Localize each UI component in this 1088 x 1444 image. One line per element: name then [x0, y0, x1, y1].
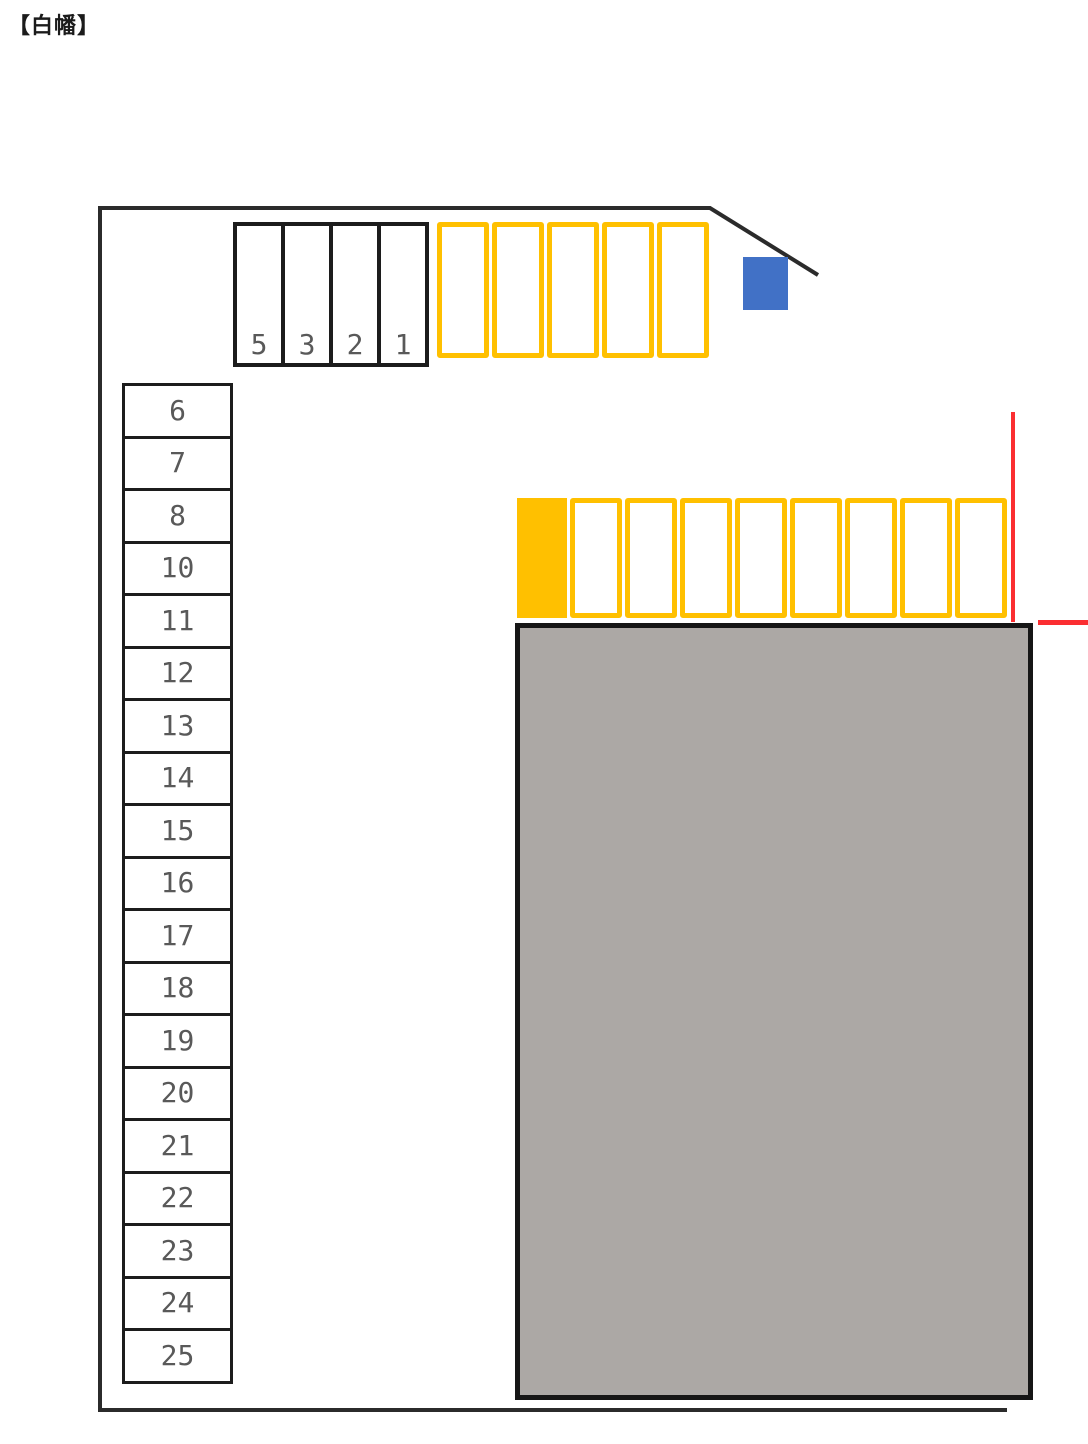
parking-stall-numbered: 2	[329, 222, 381, 367]
red-boundary-vertical-line	[1011, 412, 1015, 622]
parking-stall-numbered: 13	[122, 698, 233, 754]
parking-stall-yellow	[492, 222, 544, 358]
parking-stall-yellow	[735, 498, 787, 618]
stall-number: 16	[161, 869, 195, 897]
parking-stall-numbered: 20	[122, 1066, 233, 1122]
parking-stall-numbered: 19	[122, 1013, 233, 1069]
parking-stall-numbered: 24	[122, 1276, 233, 1332]
parking-stall-numbered: 7	[122, 436, 233, 492]
stall-number: 6	[169, 397, 186, 425]
parking-stall-yellow	[437, 222, 489, 358]
parking-stall-yellow	[625, 498, 677, 618]
parking-stall-numbered: 11	[122, 593, 233, 649]
parking-stall-numbered: 23	[122, 1223, 233, 1279]
stall-group-middle-yellow	[570, 498, 1007, 618]
stall-number: 24	[161, 1289, 195, 1317]
stall-group-top-yellow	[437, 222, 709, 358]
parking-stall-numbered: 22	[122, 1171, 233, 1227]
blue-marker	[743, 257, 788, 310]
parking-stall-numbered: 17	[122, 908, 233, 964]
parking-stall-yellow	[790, 498, 842, 618]
parking-stall-numbered: 8	[122, 488, 233, 544]
parking-stall-numbered: 16	[122, 856, 233, 912]
parking-stall-numbered: 14	[122, 751, 233, 807]
parking-stall-numbered: 10	[122, 541, 233, 597]
parking-stall-yellow	[657, 222, 709, 358]
stall-number: 23	[161, 1237, 195, 1265]
red-boundary-horizontal-line	[1038, 620, 1088, 625]
stall-number: 19	[161, 1027, 195, 1055]
parking-stall-numbered: 6	[122, 383, 233, 439]
page-title: 【白幡】	[8, 8, 100, 40]
parking-stall-yellow	[955, 498, 1007, 618]
stall-number: 12	[161, 659, 195, 687]
parking-stall-yellow	[570, 498, 622, 618]
stall-number: 15	[161, 817, 195, 845]
parking-stall-numbered: 15	[122, 803, 233, 859]
parking-stall-numbered: 25	[122, 1328, 233, 1384]
parking-stall-yellow	[547, 222, 599, 358]
stall-number: 2	[347, 331, 364, 359]
stall-column-left: 6 7 8 10 11 12 13 14 15 16 17 18 19 20 2…	[122, 383, 233, 1384]
parking-stall-yellow	[845, 498, 897, 618]
stall-number: 3	[299, 331, 316, 359]
parking-stall-yellow	[602, 222, 654, 358]
stall-number: 21	[161, 1132, 195, 1160]
stall-number: 17	[161, 922, 195, 950]
stall-number: 10	[161, 554, 195, 582]
stall-number: 18	[161, 974, 195, 1002]
stall-number: 20	[161, 1079, 195, 1107]
stall-number: 5	[251, 331, 268, 359]
parking-stall-numbered: 5	[233, 222, 285, 367]
stall-number: 22	[161, 1184, 195, 1212]
stall-number: 8	[169, 502, 186, 530]
parking-stall-filled-yellow	[517, 498, 567, 618]
parking-stall-numbered: 21	[122, 1118, 233, 1174]
parking-stall-numbered: 1	[377, 222, 429, 367]
stall-number: 13	[161, 712, 195, 740]
stall-number: 11	[161, 607, 195, 635]
parking-stall-numbered: 18	[122, 961, 233, 1017]
stall-number: 7	[169, 449, 186, 477]
parking-map-canvas: 【白幡】 5 3 2 1 6 7 8 10 11	[0, 0, 1088, 1444]
parking-stall-yellow	[900, 498, 952, 618]
stall-group-top-numbered: 5 3 2 1	[233, 222, 429, 367]
parking-stall-yellow	[680, 498, 732, 618]
parking-stall-numbered: 3	[281, 222, 333, 367]
parking-stall-numbered: 12	[122, 646, 233, 702]
building-block	[515, 623, 1033, 1400]
stall-number: 14	[161, 764, 195, 792]
stall-number: 1	[395, 331, 412, 359]
stall-number: 25	[161, 1342, 195, 1370]
